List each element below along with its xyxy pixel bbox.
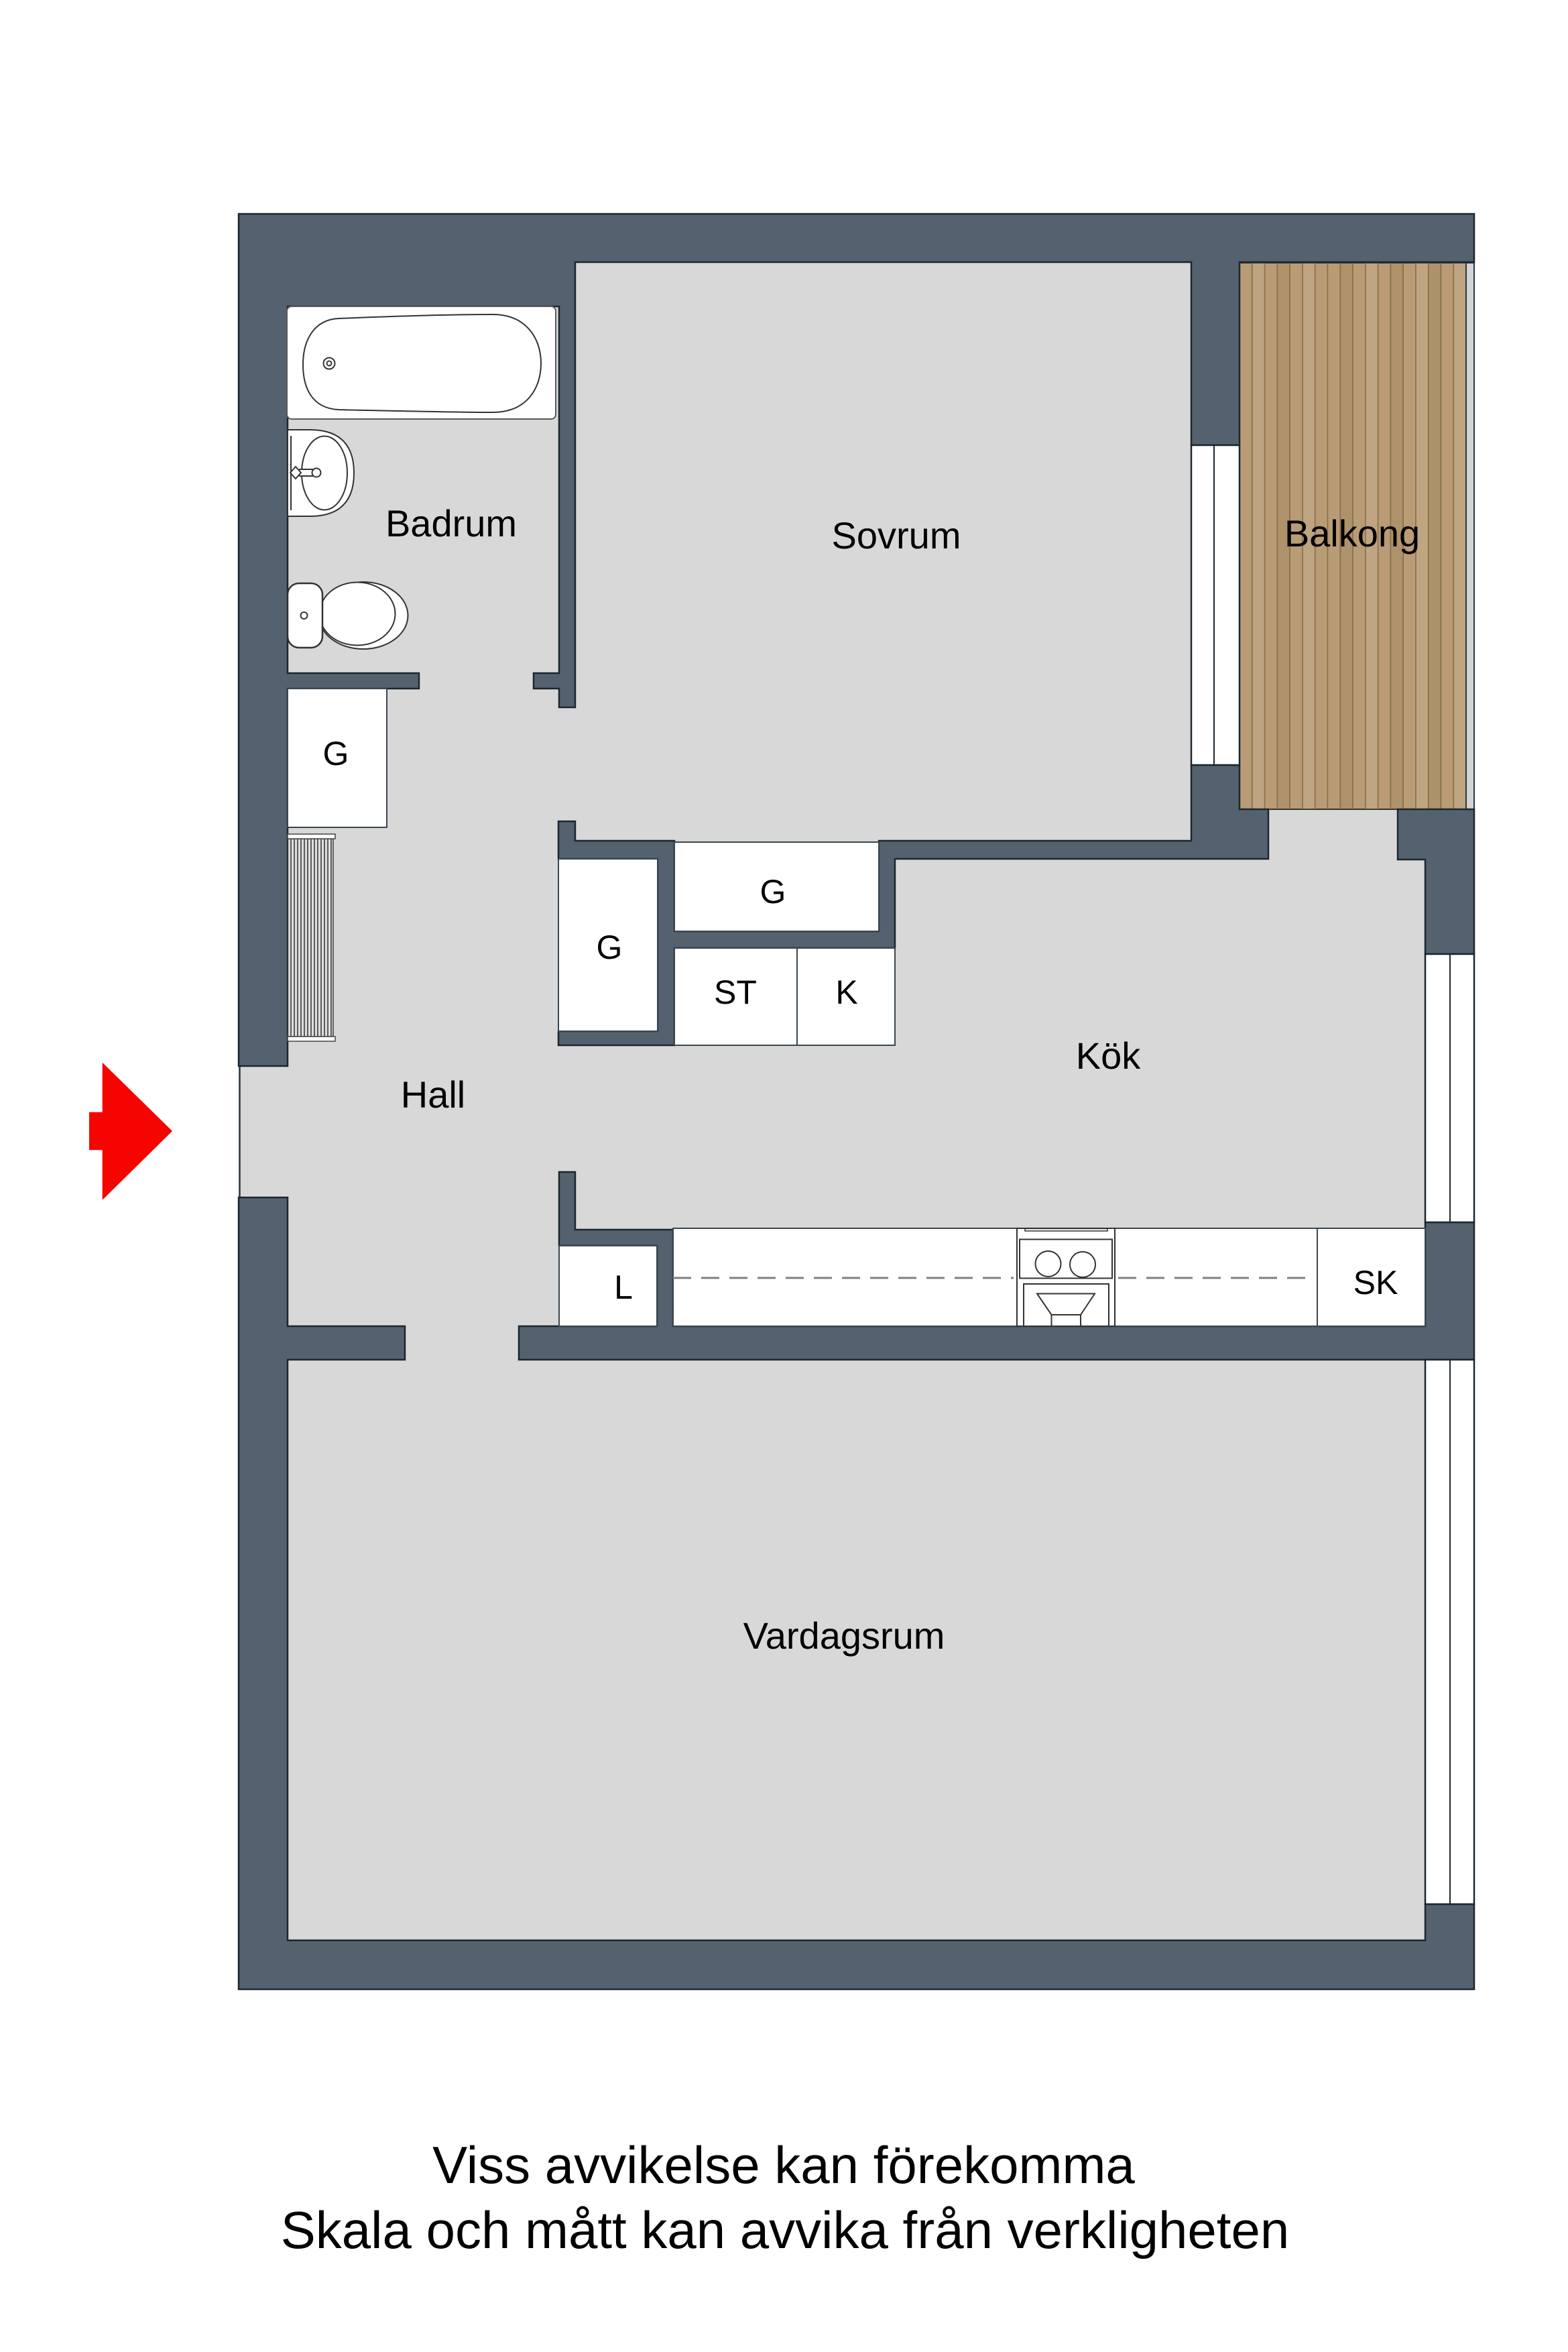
svg-text:SK: SK [1353,1264,1398,1301]
svg-text:Balkong: Balkong [1284,512,1420,554]
svg-text:ST: ST [714,974,757,1011]
svg-text:Kök: Kök [1076,1035,1141,1077]
svg-text:Viss avvikelse kan förekomma: Viss avvikelse kan förekomma [432,2135,1135,2194]
svg-text:Sovrum: Sovrum [832,514,961,556]
svg-text:G: G [760,873,786,910]
svg-text:Badrum: Badrum [385,502,517,544]
svg-text:Skala och mått kan avvika från: Skala och mått kan avvika från verklighe… [281,2200,1289,2259]
svg-text:K: K [835,974,857,1011]
svg-text:Hall: Hall [401,1073,465,1116]
svg-text:G: G [597,929,623,966]
svg-text:L: L [614,1269,633,1306]
svg-text:G: G [323,735,349,772]
svg-text:Vardagsrum: Vardagsrum [743,1614,945,1657]
